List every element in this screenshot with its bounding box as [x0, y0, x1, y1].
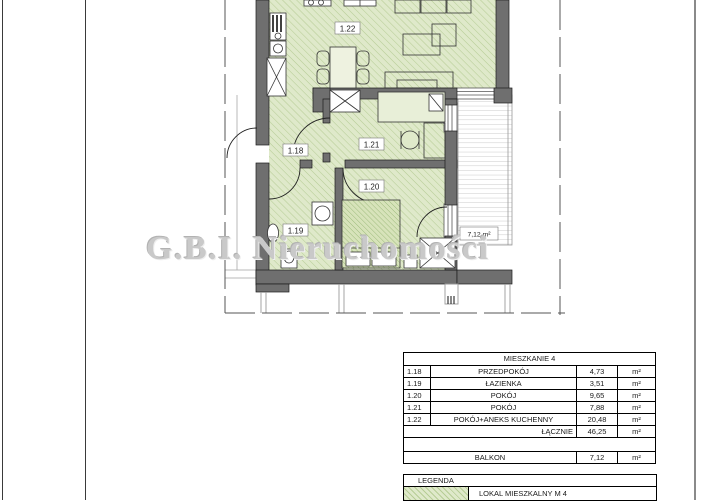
room-unit: m²: [618, 414, 656, 426]
room-area: 9,65: [577, 390, 618, 402]
room-unit: m²: [618, 402, 656, 414]
room-no: 1.18: [404, 366, 431, 378]
wall-cut-stubs: [261, 284, 510, 313]
fridge-symbol: [270, 13, 286, 40]
legend: LEGENDA LOKAL MIESZKALNY M 4: [403, 474, 657, 501]
room-name: POKÓJ: [431, 402, 577, 414]
legend-item-label: LOKAL MIESZKALNY M 4: [469, 487, 656, 500]
table-row: 1.21 POKÓJ 7,88 m²: [404, 402, 656, 414]
table-total-row: ŁĄCZNIE 46,25 m²: [404, 426, 656, 438]
room-no: 1.21: [404, 402, 431, 414]
legend-swatch-hatch: [404, 487, 469, 500]
entrance-door-arc: [227, 128, 257, 158]
table-row: 1.20 POKÓJ 9,65 m²: [404, 390, 656, 402]
room-name: ŁAZIENKA: [431, 378, 577, 390]
svg-text:1.20: 1.20: [364, 183, 380, 192]
washing-machine-symbol: [312, 202, 333, 225]
table-title: MIESZKANIE 4: [404, 353, 656, 366]
table-row: 1.22 POKÓJ+ANEKS KUCHENNY 20,48 m²: [404, 414, 656, 426]
room-label-1-22: 1.22: [335, 22, 360, 34]
balcony-label: BALKON: [404, 452, 577, 464]
room-name: PRZEDPOKÓJ: [431, 366, 577, 378]
table-spacer-row: [404, 438, 656, 452]
room-unit: m²: [618, 378, 656, 390]
room-unit: m²: [618, 366, 656, 378]
room-name: POKÓJ: [431, 390, 577, 402]
single-bed: [378, 92, 445, 122]
balcony-value: 7,12: [577, 452, 618, 464]
total-unit: m²: [618, 426, 656, 438]
room-unit: m²: [618, 390, 656, 402]
tall-cabinet-symbol: [267, 58, 286, 96]
watermark: G.B.I. Nieruchomości: [146, 230, 490, 268]
balcony-unit: m²: [618, 452, 656, 464]
utility-ticks: [448, 296, 454, 304]
svg-text:1.21: 1.21: [364, 141, 380, 150]
table-row: 1.19 ŁAZIENKA 3,51 m²: [404, 378, 656, 390]
room-label-1-21: 1.21: [359, 138, 384, 150]
room-label-1-18: 1.18: [283, 144, 308, 156]
room-name: POKÓJ+ANEKS KUCHENNY: [431, 414, 577, 426]
table-balcony-row: BALKON 7,12 m²: [404, 452, 656, 464]
room-area: 20,48: [577, 414, 618, 426]
spacer-cell: [404, 438, 656, 452]
table-row: 1.18 PRZEDPOKÓJ 4,73 m²: [404, 366, 656, 378]
svg-text:1.18: 1.18: [288, 147, 304, 156]
legend-title: LEGENDA: [404, 475, 656, 487]
svg-text:1.22: 1.22: [340, 25, 356, 34]
room-no: 1.20: [404, 390, 431, 402]
room-area: 4,73: [577, 366, 618, 378]
kitchen-sink-symbol: [270, 41, 286, 56]
room-no: 1.19: [404, 378, 431, 390]
total-label: ŁĄCZNIE: [404, 426, 577, 438]
total-value: 46,25: [577, 426, 618, 438]
stove-symbol: [304, 0, 331, 6]
room-label-1-20: 1.20: [359, 180, 384, 192]
room-no: 1.22: [404, 414, 431, 426]
table-header-row: MIESZKANIE 4: [404, 353, 656, 366]
legend-row: LOKAL MIESZKALNY M 4: [404, 487, 656, 500]
area-table: MIESZKANIE 4 1.18 PRZEDPOKÓJ 4,73 m² 1.1…: [403, 352, 656, 464]
shaft-symbol: [330, 90, 360, 112]
balcony: [458, 95, 512, 245]
room-area: 3,51: [577, 378, 618, 390]
room-area: 7,88: [577, 402, 618, 414]
counter-symbol: [344, 0, 376, 6]
